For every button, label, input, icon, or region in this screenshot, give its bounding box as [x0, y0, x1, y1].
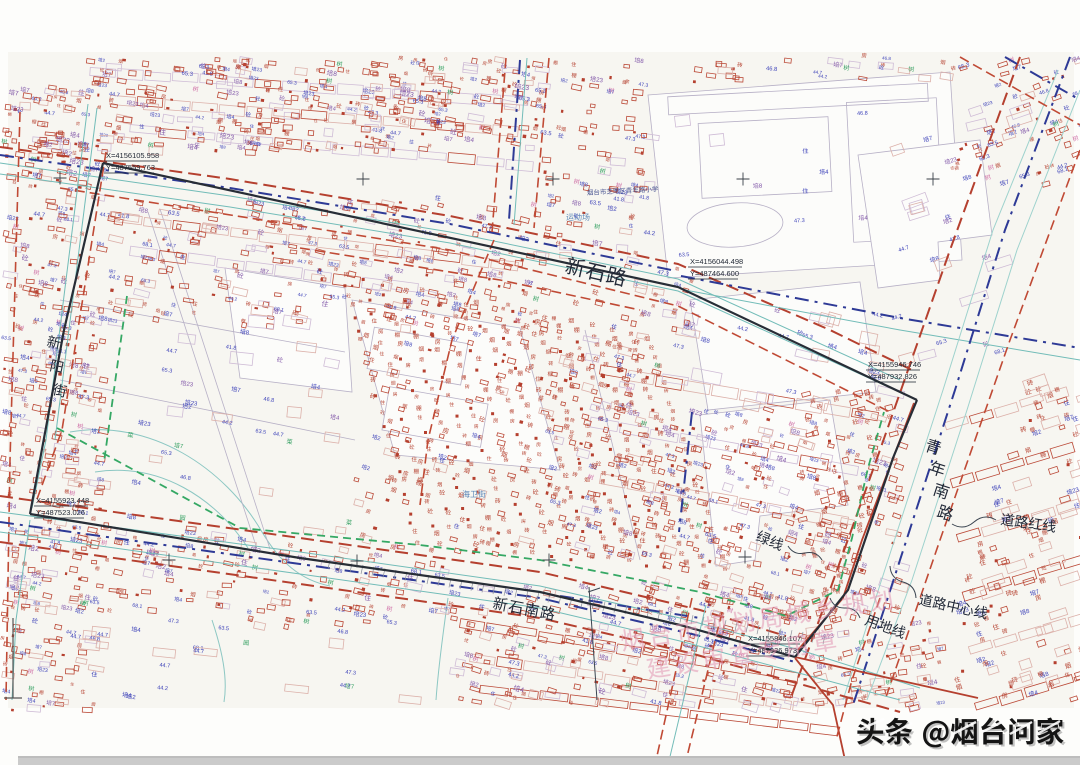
svg-text:63.5: 63.5 — [218, 625, 229, 632]
svg-text:63.5: 63.5 — [679, 252, 690, 259]
svg-text:47.3: 47.3 — [638, 82, 649, 89]
svg-text:44.2: 44.2 — [157, 685, 168, 692]
svg-text:46.8: 46.8 — [882, 55, 892, 61]
svg-text:47.3: 47.3 — [794, 218, 805, 225]
svg-text:23: 23 — [359, 612, 367, 619]
svg-text:23: 23 — [221, 226, 228, 233]
svg-text:Y=487932.826: Y=487932.826 — [868, 372, 917, 381]
svg-text:44.7: 44.7 — [193, 648, 204, 655]
svg-text:23: 23 — [37, 573, 46, 581]
svg-text:46.8: 46.8 — [766, 66, 778, 73]
svg-text:23: 23 — [66, 606, 73, 613]
svg-text:47.3: 47.3 — [345, 670, 356, 677]
svg-text:Y=487523.026: Y=487523.026 — [36, 508, 85, 517]
svg-text:23: 23 — [915, 620, 922, 627]
svg-text:Y=487559.763: Y=487559.763 — [106, 163, 155, 172]
svg-text:23: 23 — [132, 101, 139, 108]
svg-text:63.5: 63.5 — [306, 610, 317, 617]
svg-text:46.8: 46.8 — [337, 629, 348, 636]
svg-text:23: 23 — [256, 67, 262, 74]
svg-text:X=4156105.958: X=4156105.958 — [106, 151, 159, 160]
svg-text:44.2: 44.2 — [818, 74, 828, 80]
svg-text:41.8: 41.8 — [371, 127, 382, 134]
svg-text:65.3: 65.3 — [287, 80, 297, 87]
svg-text:X=4155923.448: X=4155923.448 — [36, 496, 89, 505]
svg-text:44.7: 44.7 — [339, 683, 350, 690]
svg-text:65.3: 65.3 — [249, 141, 260, 148]
svg-text:23: 23 — [226, 134, 235, 142]
svg-text:41.8: 41.8 — [639, 194, 650, 201]
svg-text:4: 4 — [1076, 56, 1080, 63]
svg-text:X=4156044.498: X=4156044.498 — [690, 257, 743, 266]
svg-text:23: 23 — [12, 216, 19, 223]
svg-text:Y=487464.600: Y=487464.600 — [690, 269, 739, 278]
svg-text:X=4155946.746: X=4155946.746 — [868, 360, 921, 369]
svg-text:44.7: 44.7 — [159, 663, 170, 670]
svg-text:65.3: 65.3 — [438, 107, 448, 114]
svg-text:23: 23 — [406, 91, 415, 99]
svg-text:44.7: 44.7 — [97, 632, 108, 639]
svg-text:23: 23 — [101, 83, 107, 90]
svg-text:23: 23 — [154, 112, 160, 119]
svg-text:23: 23 — [42, 667, 49, 674]
svg-text:46.8: 46.8 — [857, 111, 868, 118]
svg-text:47.3: 47.3 — [168, 618, 179, 625]
